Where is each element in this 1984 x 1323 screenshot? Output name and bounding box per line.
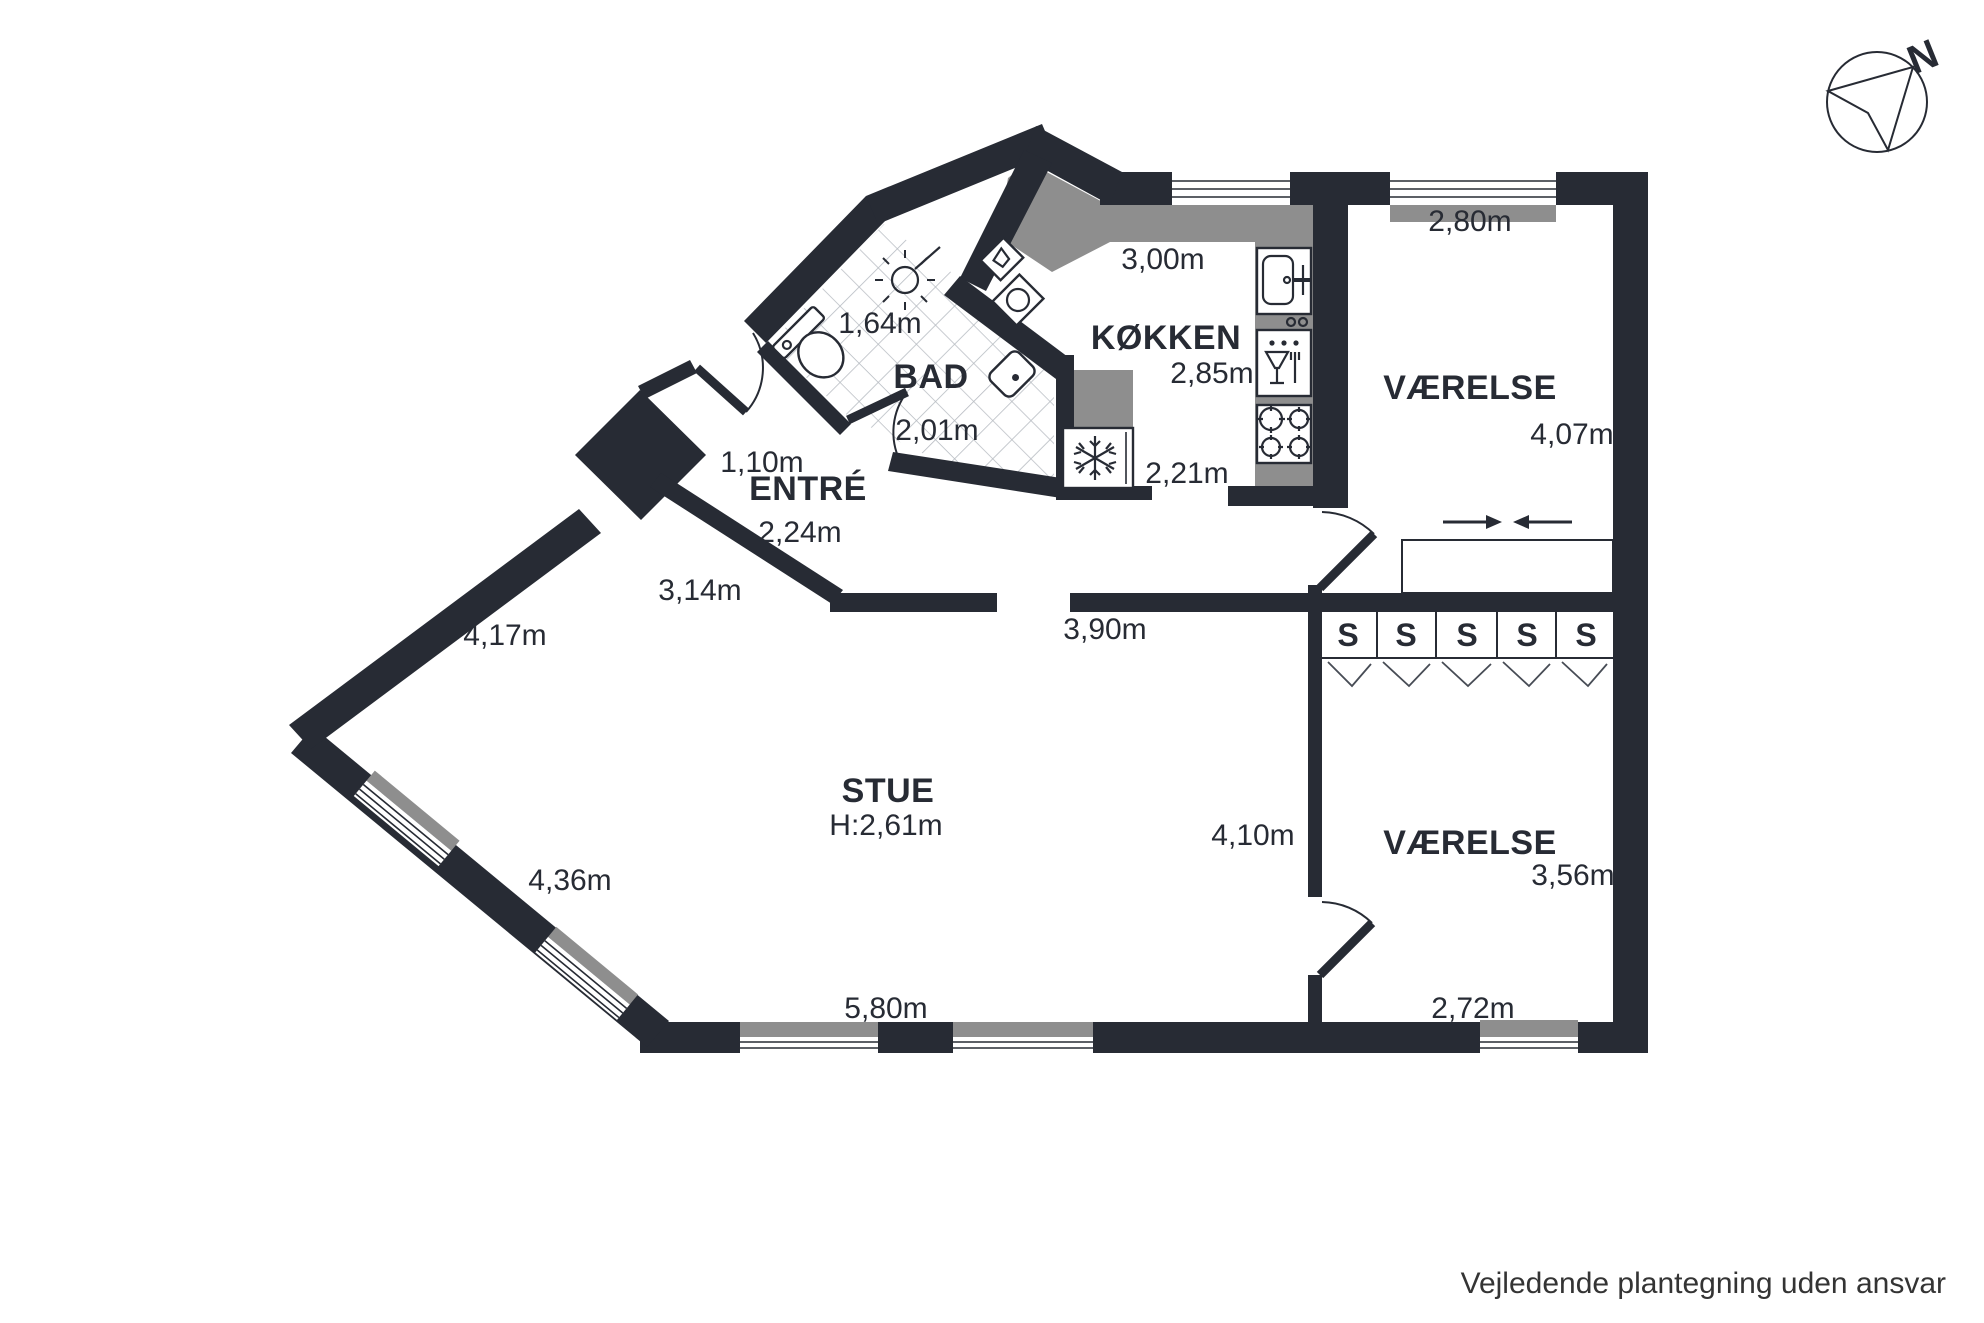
stove-icon (1257, 405, 1311, 463)
dim-bad-depth: 2,01m (895, 414, 978, 447)
floor-plan-page: S S S S S N 1,64m BAD 2,01m 3,00m KØKKEN… (0, 0, 1984, 1323)
dim-entre-wall: 3,14m (658, 574, 741, 607)
dim-stue-ceiling: H:2,61m (829, 809, 942, 842)
floor-plan: S S S S S N 1,64m BAD 2,01m 3,00m KØKKEN… (0, 0, 1984, 1323)
window-stue-bottom-2 (953, 1022, 1093, 1053)
dim-vaerelse-top-width: 2,80m (1428, 205, 1511, 238)
dim-stue-upper-left: 4,17m (463, 619, 546, 652)
room-label-kokken: KØKKEN (1091, 319, 1241, 357)
disclaimer-text: Vejledende plantegning uden ansvar (1461, 1267, 1946, 1300)
dim-entre-width: 2,24m (758, 516, 841, 549)
room-label-vaerelse-bottom: VÆRELSE (1383, 824, 1557, 862)
dim-kokken-bottom: 2,21m (1145, 457, 1228, 490)
dim-kokken-top: 3,00m (1121, 243, 1204, 276)
dim-vaerelse-bottom-depth: 3,56m (1531, 859, 1614, 892)
closet-label: S (1395, 617, 1416, 653)
fridge-icon (1063, 428, 1133, 488)
dim-stue-right: 4,10m (1211, 819, 1294, 852)
closet-label: S (1456, 617, 1477, 653)
dim-stue-top: 3,90m (1063, 613, 1146, 646)
window-stue-bottom-1 (740, 1022, 878, 1053)
closet-label: S (1337, 617, 1358, 653)
kitchen-sink-unit-icon (1257, 248, 1311, 314)
room-label-vaerelse-top: VÆRELSE (1383, 369, 1557, 407)
room-label-entre: ENTRÉ (749, 470, 867, 508)
dim-kokken-right: 2,85m (1170, 357, 1253, 390)
dim-vaerelse-top-depth: 4,07m (1530, 418, 1613, 451)
room-label-bad: BAD (893, 358, 968, 396)
closet-label: S (1575, 617, 1596, 653)
dishwasher-icon (1257, 330, 1311, 396)
paper-background (0, 0, 1984, 1323)
room-label-stue: STUE (842, 772, 935, 810)
dim-stue-lower-left: 4,36m (528, 864, 611, 897)
closet-label: S (1516, 617, 1537, 653)
window-kitchen (1172, 172, 1290, 205)
dim-stue-bottom: 5,80m (844, 992, 927, 1025)
dim-bad-width: 1,64m (838, 307, 921, 340)
dim-vaerelse-bottom-width: 2,72m (1431, 992, 1514, 1025)
